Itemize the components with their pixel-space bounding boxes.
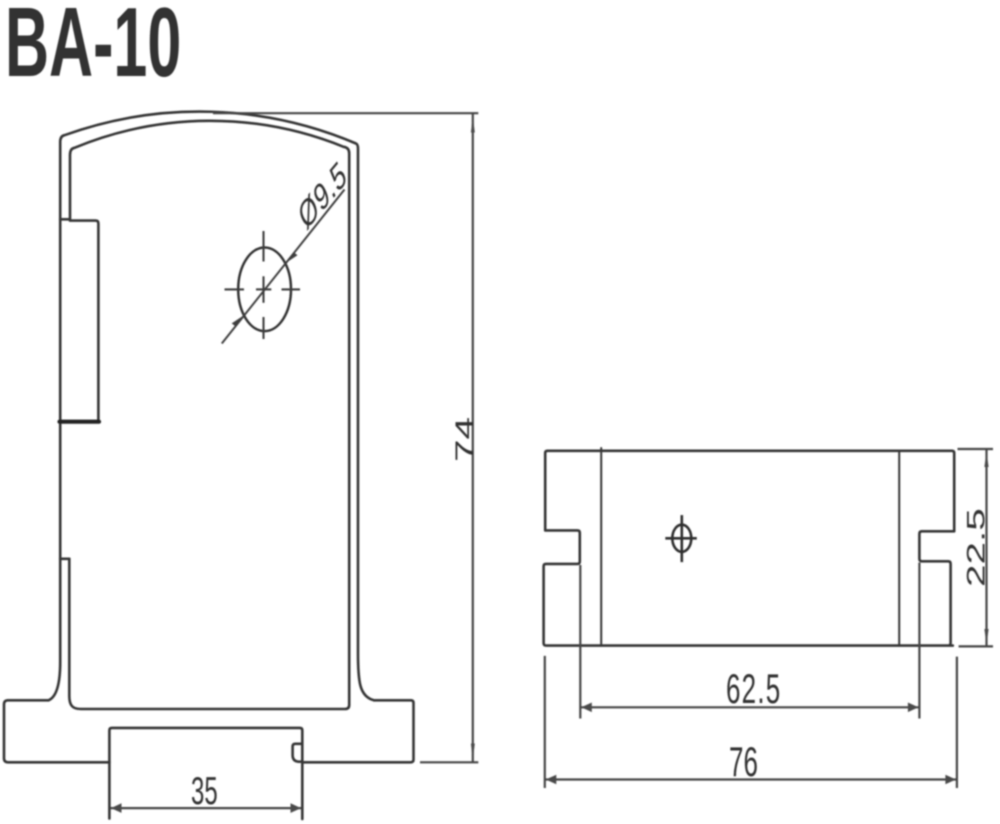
svg-text:35: 35 bbox=[191, 769, 218, 812]
svg-text:62.5: 62.5 bbox=[726, 666, 781, 713]
svg-text:74: 74 bbox=[451, 417, 478, 462]
svg-text:BA-10: BA-10 bbox=[5, 0, 181, 98]
svg-text:22.5: 22.5 bbox=[963, 508, 990, 587]
svg-text:76: 76 bbox=[729, 739, 758, 786]
